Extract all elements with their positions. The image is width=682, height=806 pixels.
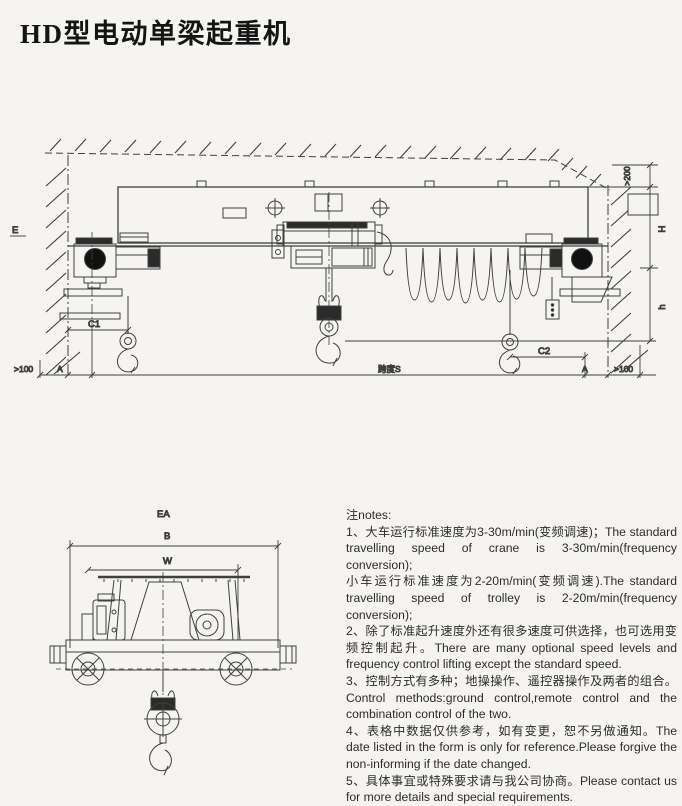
end-carriage — [50, 640, 296, 685]
end-stop-box — [628, 194, 658, 215]
hook-left-limit — [117, 296, 137, 373]
side-view-drawing: EA B W — [0, 490, 340, 806]
note-item: 5、具体事宜或特殊要求请与我公司协商。Please contact us for… — [346, 773, 677, 806]
notes-section: 注notes: 1、大车运行标准速度为3-30m/min(变频调速)；The s… — [346, 507, 677, 806]
note-item: 1、大车运行标准速度为3-30m/min(变频调速)；The standard … — [346, 524, 677, 574]
main-hoist — [272, 192, 393, 345]
hook-right-limit — [499, 270, 519, 374]
dim-label-span: 跨度S — [378, 364, 401, 374]
dim-label-c2: C2 — [538, 346, 550, 357]
end-truck-right — [520, 234, 620, 302]
side-hook-block — [144, 672, 182, 775]
girder-section — [131, 582, 199, 640]
dim-label-ea: EA — [157, 509, 170, 520]
note-item: 4、表格中数据仅供参考，如有变更，恕不另做通知。The date listed … — [346, 723, 677, 773]
note-item: 2、除了标准起升速度外还有很多速度可供选择，也可选用变频控制起升。There a… — [346, 623, 677, 673]
lifting-point-mark — [370, 198, 390, 218]
ceiling-hatch — [45, 139, 610, 190]
dim-label-h-lower: h — [657, 304, 668, 309]
dim-label-a-left: A — [57, 364, 63, 374]
wall-left — [46, 155, 80, 378]
dimension-lines — [37, 162, 658, 378]
notes-heading: 注notes: — [346, 507, 677, 524]
buffer-right — [280, 646, 296, 663]
dim-label-c1: C1 — [88, 319, 100, 330]
lifting-point-mark — [265, 198, 285, 218]
dim-label-gt100-left: >100 — [14, 364, 33, 374]
dim-label-gt100-right: >100 — [614, 364, 633, 374]
inspection-plate — [223, 208, 246, 218]
dim-label-b: B — [164, 531, 170, 542]
dim-label-h-upper: H — [657, 225, 668, 232]
pendant-control — [546, 277, 559, 319]
dim-label-e: E — [12, 225, 18, 236]
festoon-cable — [406, 248, 542, 303]
main-drawing: E >100 A C1 跨度S C2 A >100 >200 H h — [0, 0, 682, 492]
support-legs — [107, 580, 240, 640]
dim-label-gt200: >200 — [622, 166, 632, 185]
end-truck-left — [60, 232, 160, 332]
catalog-page: { "page": { "title": "HD型电动单梁起重机", "back… — [0, 0, 682, 806]
buffer-left — [50, 646, 66, 663]
girder — [68, 181, 658, 246]
main-hook-block — [316, 296, 341, 366]
note-item: 3、控制方式有多种；地操操作、遥控器操作及两者的组合。Control metho… — [346, 673, 677, 723]
bridge-structure — [82, 577, 250, 640]
dim-label-w: W — [163, 556, 172, 567]
rope-guide-arm — [377, 232, 393, 275]
note-item: 小车运行标准速度为2-20m/min(变频调速).The standard tr… — [346, 573, 677, 623]
dim-label-a-right: A — [582, 364, 588, 374]
